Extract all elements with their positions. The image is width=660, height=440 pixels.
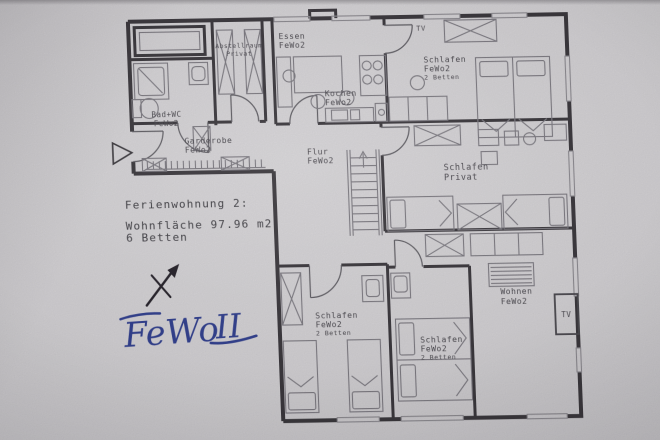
floorplan-photo: Bad+WC FeWo2 Abstellraum Privat Garderob… xyxy=(0,0,660,440)
photo-grain xyxy=(0,0,660,440)
floorplan-drawing: Bad+WC FeWo2 Abstellraum Privat Garderob… xyxy=(0,0,660,440)
